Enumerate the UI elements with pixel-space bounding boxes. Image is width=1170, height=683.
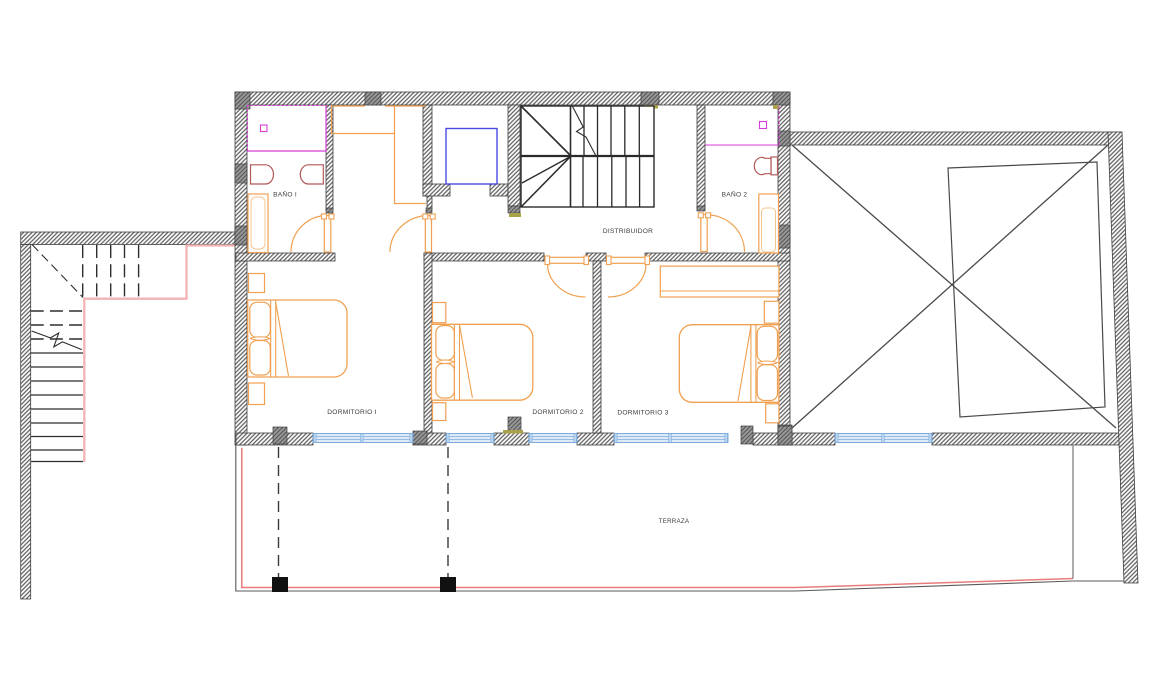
svg-text:TERRAZA: TERRAZA <box>659 518 690 525</box>
svg-text:DORMITORIO 2: DORMITORIO 2 <box>532 409 583 416</box>
svg-text:DORMITORIO I: DORMITORIO I <box>327 409 376 416</box>
svg-text:BAÑO I: BAÑO I <box>273 190 297 199</box>
svg-text:DORMITORIO 3: DORMITORIO 3 <box>617 410 668 417</box>
svg-text:DISTRIBUIDOR: DISTRIBUIDOR <box>603 228 653 235</box>
svg-text:BAÑO 2: BAÑO 2 <box>722 190 748 199</box>
